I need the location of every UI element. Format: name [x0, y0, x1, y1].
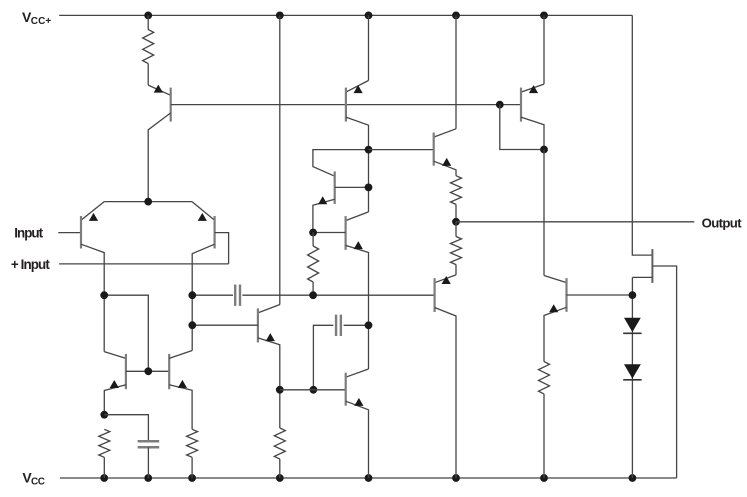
svg-text:CC+: CC+ [31, 16, 52, 27]
svg-text:CC: CC [31, 477, 45, 488]
svg-text:+ Input: + Input [11, 257, 50, 272]
svg-text:Output: Output [702, 215, 743, 230]
svg-text:Input: Input [14, 225, 43, 240]
